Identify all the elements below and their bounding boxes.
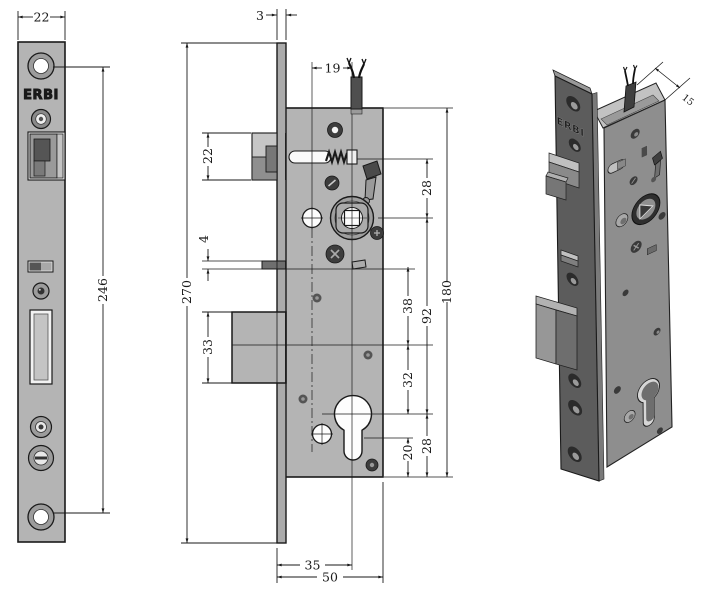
side-view: 270 3 19 22 4 [179,8,454,585]
svg-text:28: 28 [419,180,434,196]
svg-text:22: 22 [200,148,215,164]
svg-text:35: 35 [305,558,321,573]
latch-front [28,132,65,180]
svg-text:33: 33 [200,339,215,355]
svg-text:22: 22 [34,10,50,25]
svg-text:3: 3 [256,8,264,23]
svg-text:20: 20 [400,445,415,461]
svg-text:180: 180 [439,280,454,304]
faceplate-hole-2 [32,110,51,129]
faceplate-screw-2 [29,446,54,471]
deadbolt-side [232,312,286,383]
deadbolt-slot-front [30,310,52,384]
dim-deadbolt-to-cylinder: 32 [400,345,415,414]
dim-plate-width: 22 [18,10,65,41]
latch-bolt-side [252,133,277,180]
dim-latch-height: 22 [200,133,251,180]
faceplate-bottom-hole [28,504,54,530]
dim-pin-height: 4 [196,235,211,281]
faceplate-hole-3 [33,283,49,299]
svg-text:32: 32 [400,372,415,388]
svg-text:28: 28 [419,438,434,454]
body-screw-a [325,176,339,190]
body-top-hole [328,123,343,138]
spring-slot [289,150,357,164]
small-plate [352,260,366,269]
svg-text:19: 19 [325,61,341,76]
svg-text:38: 38 [400,298,415,314]
svg-text:270: 270 [179,280,194,304]
lock-drawing-svg: ERBI [0,0,706,600]
wire-icon [359,64,364,78]
dim-body-depth: 50 [277,570,383,585]
dim-deadbolt-height: 33 [200,312,234,383]
dim-cylinder-to-bottom: 28 [419,414,434,477]
body-screw-b [371,227,384,240]
iso-view: ERBI 15 [536,62,696,481]
svg-text:50: 50 [322,570,338,585]
dim-slot-to-hub: 28 [419,159,434,218]
faceplate-screw-1 [31,417,52,438]
dim-hub-to-cylinder: 92 [419,218,434,414]
aux-latch-slot [28,261,53,272]
svg-text:92: 92 [419,308,434,324]
cable [347,58,366,114]
front-view: ERBI [18,10,110,543]
body-screw-c [326,245,344,263]
dim-plate-length: 270 [179,43,278,543]
dim-slot-bottom-margin: 20 [400,438,415,477]
dim-pin-to-deadbolt: 38 [400,267,415,345]
erbi-logo-front: ERBI [23,88,59,103]
dim-cable-offset: 19 [312,61,352,76]
svg-text:246: 246 [95,278,110,302]
dim-body-height: 180 [439,108,454,477]
wire-icon [349,63,354,78]
dim-backset: 35 [277,482,383,583]
iso-deadbolt [536,296,577,370]
faceplate-top-hole [28,53,54,79]
dim-plate-thickness: 3 [256,8,297,40]
faceplate-side [277,43,286,543]
technical-drawing-page: ERBI [0,0,706,600]
svg-text:4: 4 [196,235,211,243]
aux-pin-side [262,261,286,269]
svg-text:15: 15 [680,92,696,108]
